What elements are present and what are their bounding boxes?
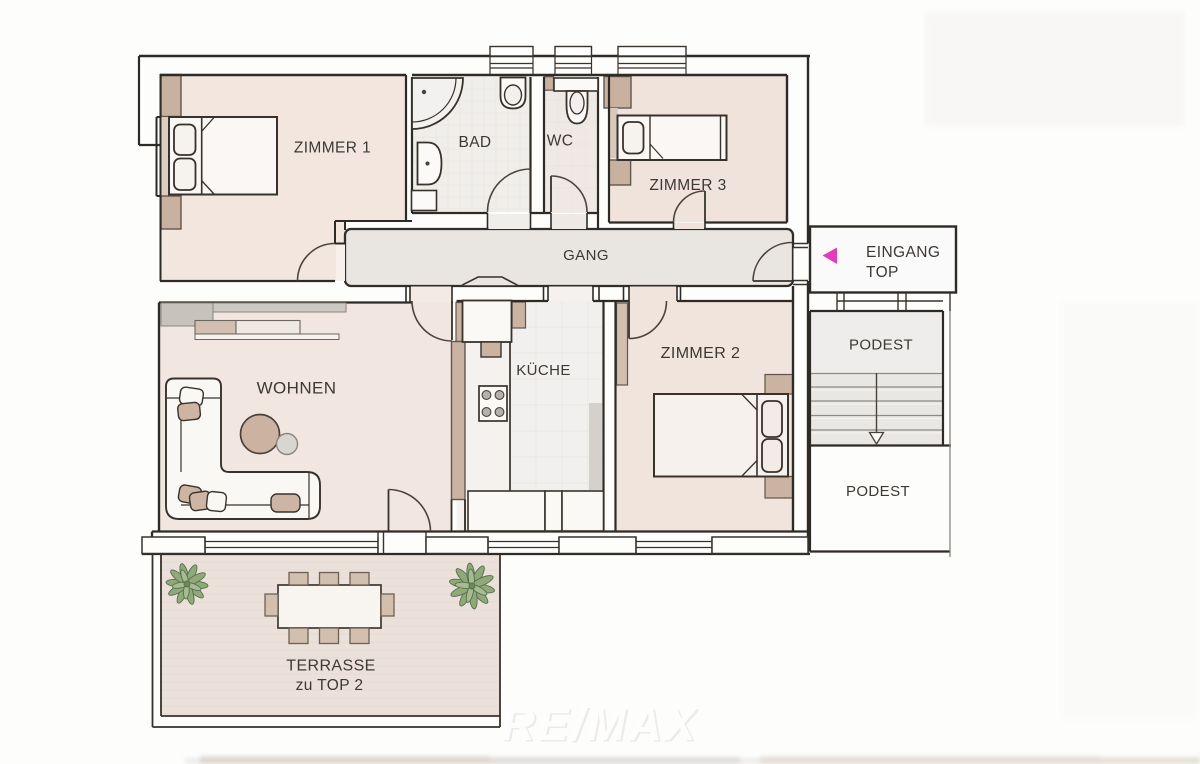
svg-text:TERRASSE: TERRASSE	[286, 658, 375, 675]
svg-text:PODEST: PODEST	[849, 337, 913, 354]
svg-text:GANG: GANG	[563, 247, 609, 264]
svg-text:BAD: BAD	[458, 134, 491, 151]
svg-text:ZIMMER 3: ZIMMER 3	[649, 177, 726, 194]
svg-text:EINGANG: EINGANG	[866, 244, 940, 261]
svg-text:WC: WC	[547, 133, 574, 150]
svg-text:WOHNEN: WOHNEN	[257, 379, 337, 398]
svg-text:ZIMMER 2: ZIMMER 2	[661, 345, 741, 362]
svg-text:KÜCHE: KÜCHE	[516, 361, 571, 379]
svg-text:TOP: TOP	[866, 264, 899, 281]
svg-text:zu TOP 2: zu TOP 2	[296, 677, 364, 694]
svg-text:RE/MAX: RE/MAX	[502, 698, 699, 750]
svg-text:PODEST: PODEST	[846, 483, 910, 500]
svg-text:ZIMMER 1: ZIMMER 1	[294, 140, 371, 157]
